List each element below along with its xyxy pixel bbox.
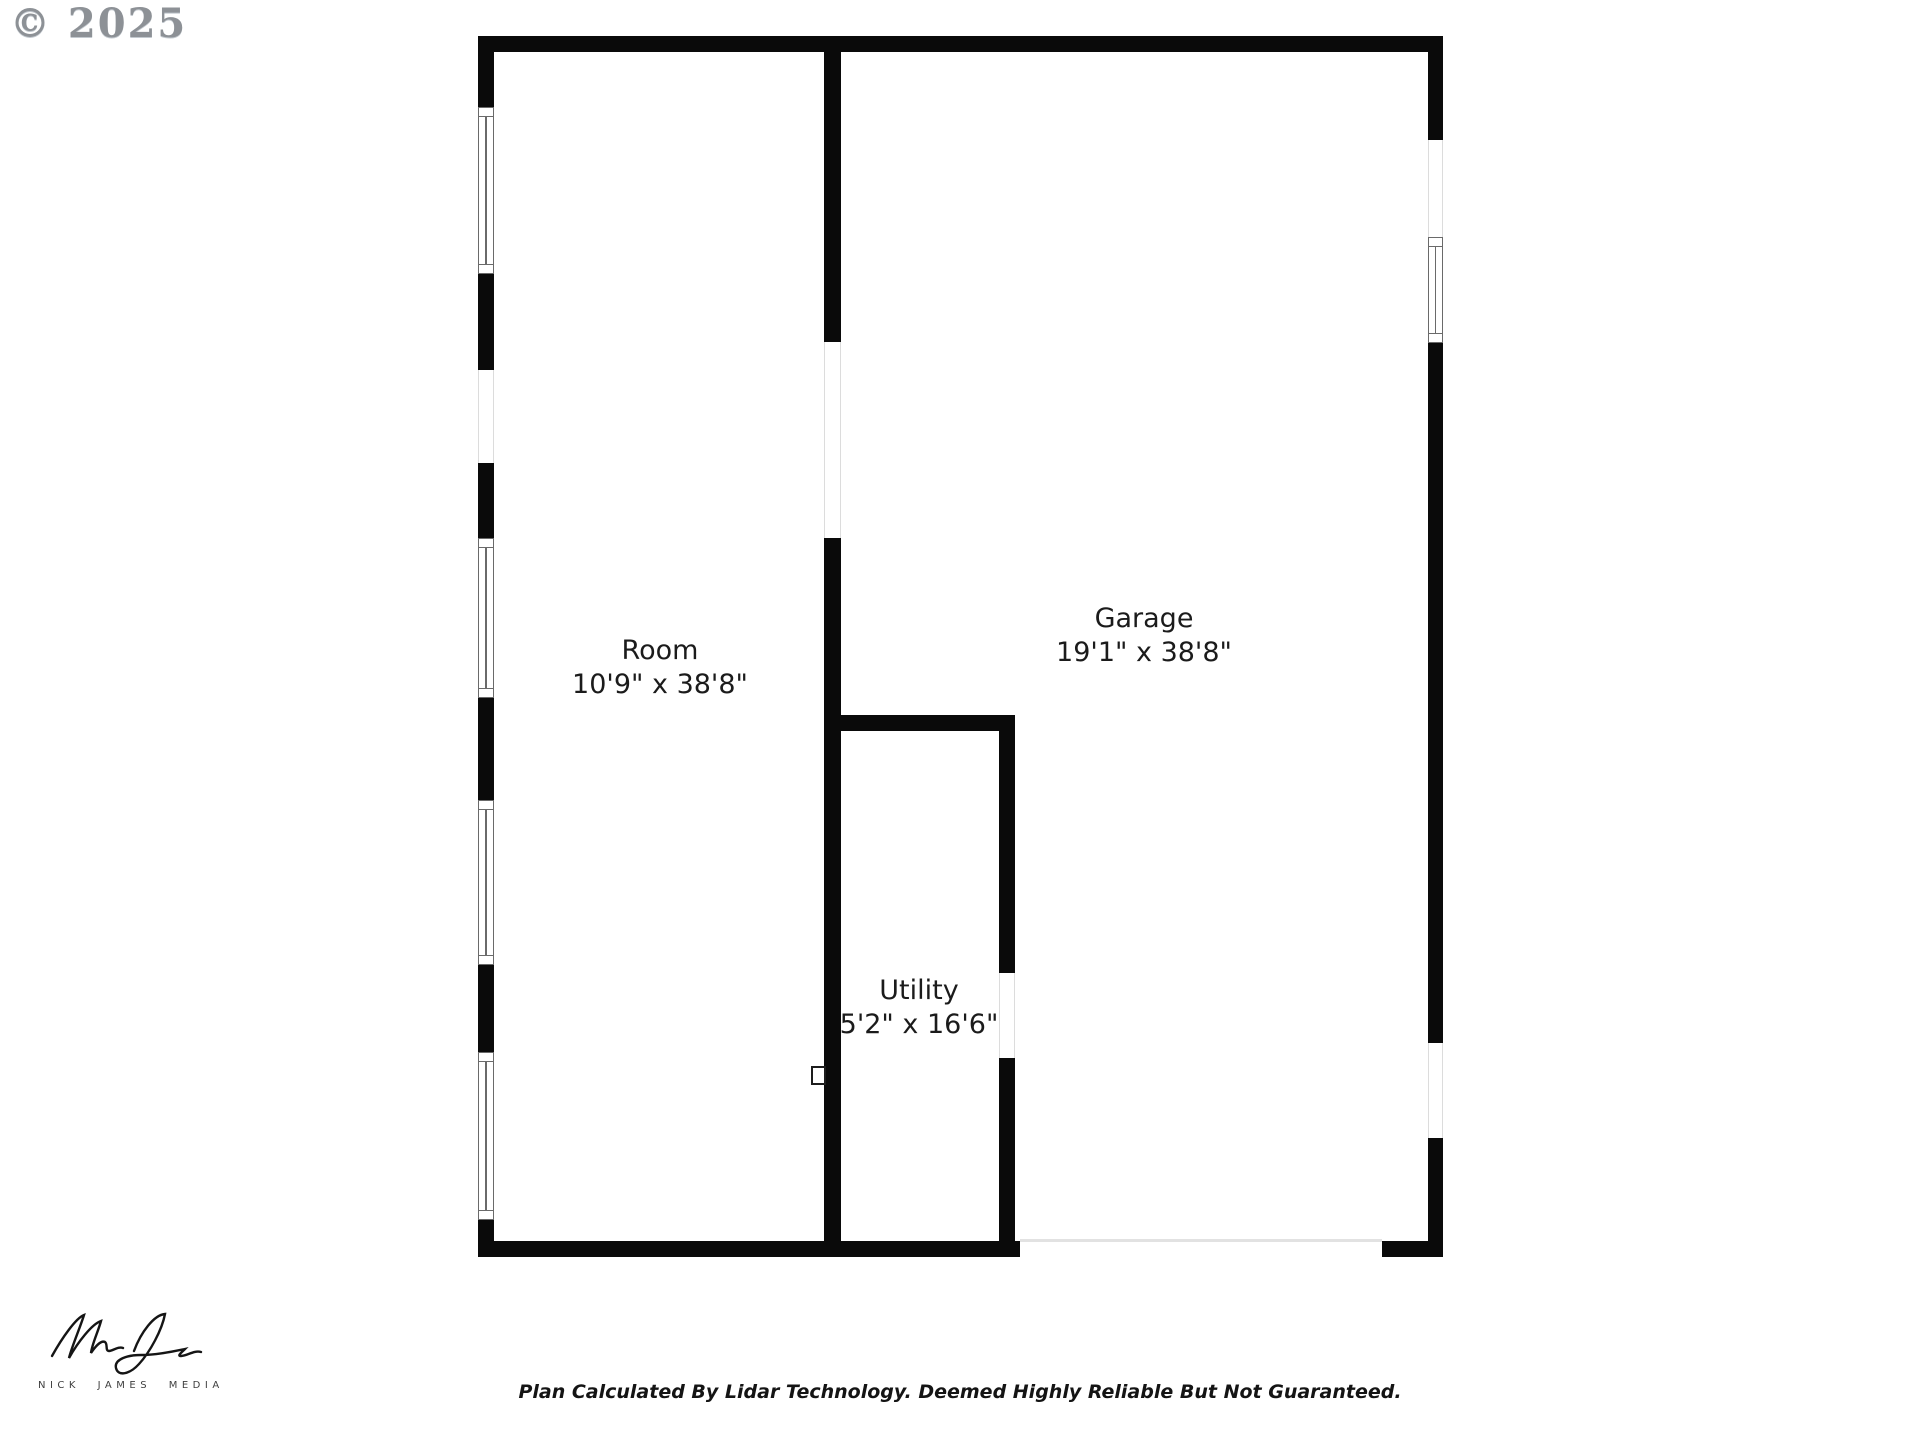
wall-opening	[478, 370, 494, 463]
wall-opening	[1428, 140, 1443, 237]
utility-wall-right-segment	[999, 1058, 1015, 1257]
room-label: Room 10'9" x 38'8"	[480, 634, 840, 702]
utility-wall-top	[841, 715, 1015, 731]
window	[478, 800, 494, 965]
right-wall-segment	[1428, 1138, 1443, 1257]
left-wall-segment	[478, 698, 494, 800]
utility-wall-right-segment	[999, 715, 1015, 973]
wall-opening	[1428, 1043, 1443, 1138]
garage-door-opening	[1020, 1239, 1382, 1242]
window	[478, 1052, 494, 1220]
left-wall-segment	[478, 965, 494, 1052]
signature-icon	[38, 1306, 208, 1378]
room-name: Utility	[739, 974, 1099, 1008]
electrical-panel	[811, 1066, 826, 1085]
room-name: Garage	[964, 602, 1324, 636]
wall-opening	[824, 342, 841, 538]
left-wall-segment	[478, 463, 494, 538]
room-name: Room	[480, 634, 840, 668]
right-wall-segment	[1428, 343, 1443, 1043]
room-dimensions: 5'2" x 16'6"	[739, 1008, 1099, 1042]
outer-wall-bottom-left	[478, 1241, 1020, 1257]
window	[1428, 237, 1443, 343]
room-label: Garage 19'1" x 38'8"	[964, 602, 1324, 670]
right-wall-segment	[1428, 52, 1443, 140]
window	[478, 107, 494, 274]
room-dimensions: 19'1" x 38'8"	[964, 636, 1324, 670]
disclaimer-text: Plan Calculated By Lidar Technology. Dee…	[0, 1381, 1920, 1403]
left-wall-segment	[478, 36, 494, 107]
room-dimensions: 10'9" x 38'8"	[480, 668, 840, 702]
interior-wall-segment	[824, 52, 841, 342]
left-wall-segment	[478, 1220, 494, 1257]
signature-logo: NICK JAMES MEDIA	[38, 1306, 218, 1391]
floor-plan: Room 10'9" x 38'8" Garage 19'1" x 38'8" …	[0, 0, 1920, 1440]
left-wall-segment	[478, 274, 494, 370]
room-label: Utility 5'2" x 16'6"	[739, 974, 1099, 1042]
outer-wall-top	[478, 36, 1443, 52]
